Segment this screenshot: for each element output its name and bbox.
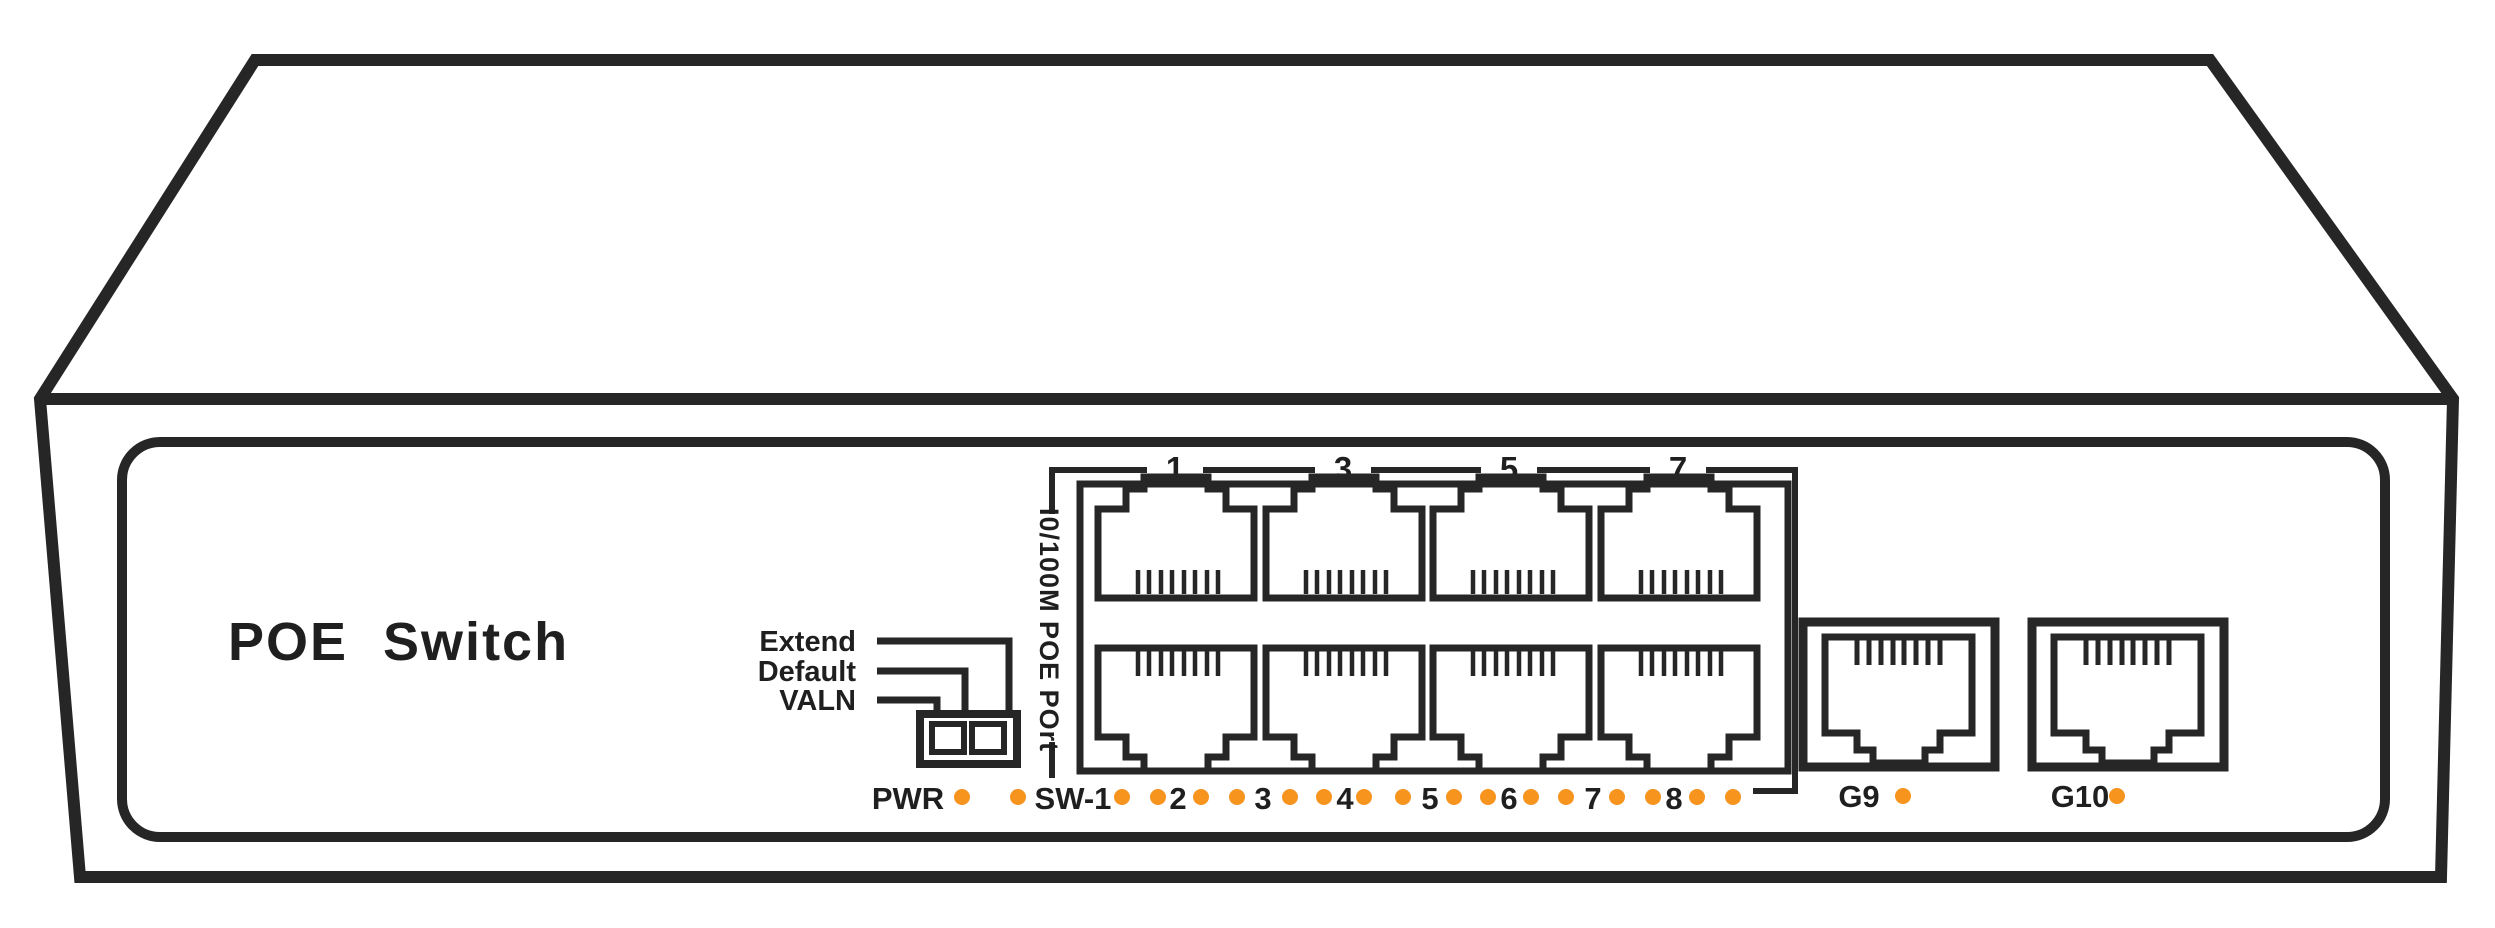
led-dot bbox=[1609, 789, 1625, 805]
diagram-canvas: POE Switch Extend Default VALN I0/100M P… bbox=[0, 0, 2495, 928]
led-dot bbox=[1395, 789, 1411, 805]
led-port-number-7: 7 bbox=[1584, 781, 1601, 816]
led-dot bbox=[1356, 789, 1372, 805]
mode-label-extend: Extend bbox=[759, 626, 856, 658]
uplink-label-g9: G9 bbox=[1838, 779, 1879, 814]
led-port-number-4: 4 bbox=[1336, 781, 1354, 816]
poe-switch-diagram: POE Switch Extend Default VALN I0/100M P… bbox=[0, 0, 2495, 928]
led-dot bbox=[1725, 789, 1741, 805]
device-title: POE Switch bbox=[228, 612, 569, 672]
led-port-number-8: 8 bbox=[1665, 781, 1682, 816]
led-dot bbox=[1480, 789, 1496, 805]
led-dot bbox=[1689, 789, 1705, 805]
led-dot bbox=[1523, 789, 1539, 805]
led-port-number-5: 5 bbox=[1421, 781, 1438, 816]
led-dot-g9 bbox=[1895, 788, 1911, 804]
led-dot bbox=[1558, 789, 1574, 805]
mode-label-valn: VALN bbox=[779, 685, 856, 717]
switch-label: SW-1 bbox=[1035, 781, 1112, 816]
led-dot bbox=[1193, 789, 1209, 805]
led-port-number-2: 2 bbox=[1169, 781, 1186, 816]
port-number-7: 7 bbox=[1669, 450, 1687, 487]
uplink-label-g10: G10 bbox=[2051, 779, 2110, 814]
led-dot bbox=[1446, 789, 1462, 805]
led-dot bbox=[1010, 789, 1026, 805]
mode-label-default: Default bbox=[758, 656, 857, 688]
led-dot-g10 bbox=[2109, 788, 2125, 804]
led-dot bbox=[1316, 789, 1332, 805]
port-group-vertical-label: I0/100M POE POrt bbox=[1034, 508, 1064, 752]
port-number-1: 1 bbox=[1166, 450, 1184, 487]
led-dot bbox=[1229, 789, 1245, 805]
led-port-number-6: 6 bbox=[1500, 781, 1517, 816]
led-dot bbox=[1282, 789, 1298, 805]
port-number-5: 5 bbox=[1500, 450, 1518, 487]
led-dot-pwr bbox=[954, 789, 970, 805]
power-label: PWR bbox=[872, 781, 944, 816]
led-dot bbox=[1645, 789, 1661, 805]
led-dot bbox=[1150, 789, 1166, 805]
led-port-number-3: 3 bbox=[1254, 781, 1271, 816]
led-dot bbox=[1114, 789, 1130, 805]
port-number-3: 3 bbox=[1334, 450, 1352, 487]
